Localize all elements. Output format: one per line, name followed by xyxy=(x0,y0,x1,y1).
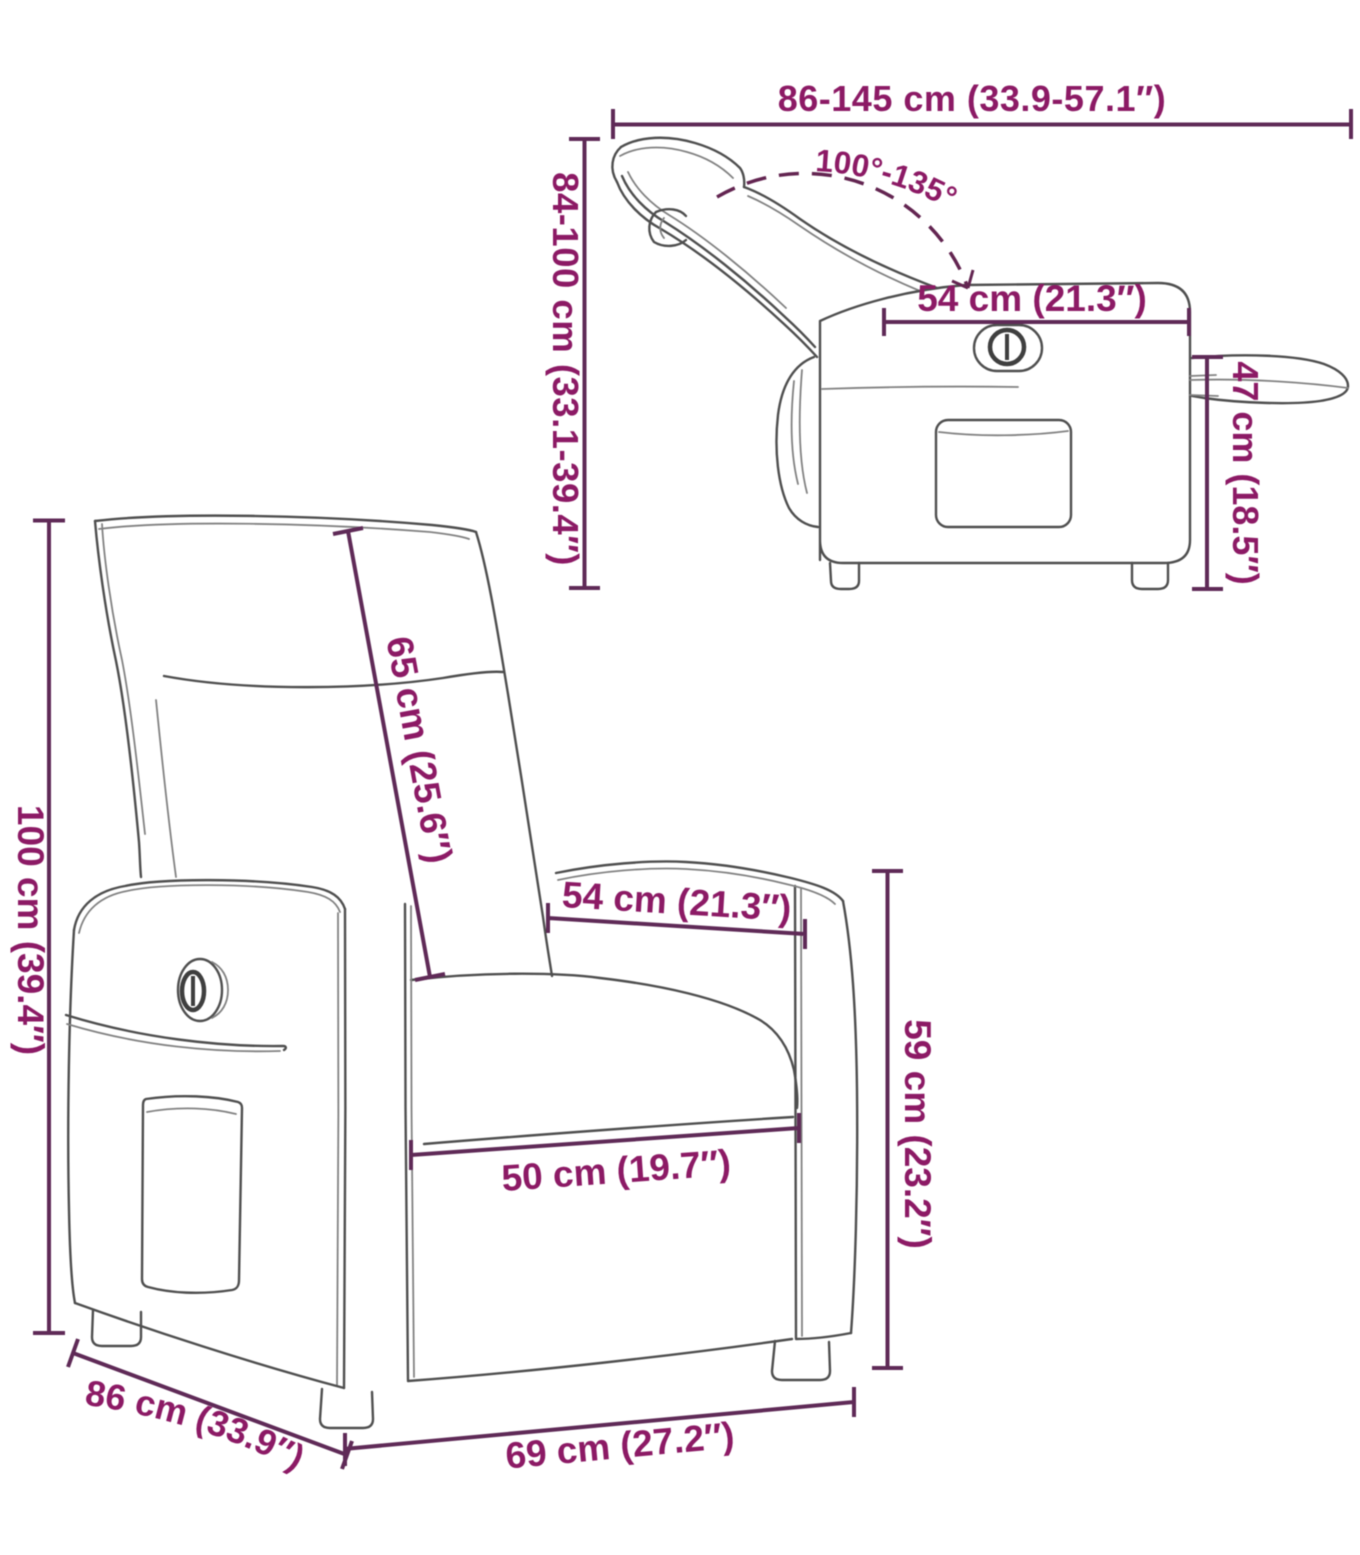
svg-text:86-145 cm (33.9-57.1″): 86-145 cm (33.9-57.1″) xyxy=(778,78,1166,119)
svg-text:100 cm (39.4″): 100 cm (39.4″) xyxy=(10,805,51,1055)
svg-text:47 cm (18.5″): 47 cm (18.5″) xyxy=(1225,361,1266,584)
svg-text:59 cm (23.2″): 59 cm (23.2″) xyxy=(897,1019,938,1249)
svg-text:54 cm (21.3″): 54 cm (21.3″) xyxy=(917,278,1147,319)
svg-text:84-100 cm (33.1-39.4″): 84-100 cm (33.1-39.4″) xyxy=(545,172,586,566)
